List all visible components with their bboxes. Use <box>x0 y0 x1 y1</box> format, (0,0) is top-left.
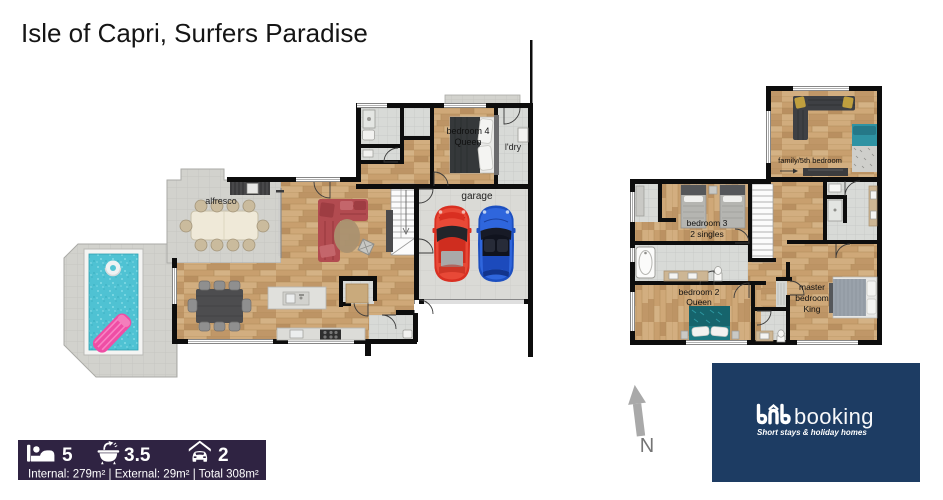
svg-text:2 singles: 2 singles <box>690 229 724 239</box>
svg-text:2: 2 <box>218 445 229 466</box>
svg-text:Isle of Capri, Surfers Paradis: Isle of Capri, Surfers Paradise <box>21 18 368 48</box>
svg-text:l'dry: l'dry <box>505 142 522 152</box>
svg-text:bedroom 2: bedroom 2 <box>679 287 720 297</box>
svg-text:5: 5 <box>62 445 73 466</box>
svg-text:master: master <box>799 282 825 292</box>
svg-text:Queen: Queen <box>454 137 481 147</box>
svg-text:Queen: Queen <box>686 297 712 307</box>
svg-text:N: N <box>640 435 654 457</box>
svg-text:bedroom 3: bedroom 3 <box>687 218 728 228</box>
svg-text:family/5th bedroom: family/5th bedroom <box>778 156 842 165</box>
svg-text:Internal: 279m² | External: 29: Internal: 279m² | External: 29m² | Total… <box>28 469 259 481</box>
svg-text:bedroom 4: bedroom 4 <box>446 126 489 136</box>
svg-text:alfresco: alfresco <box>205 196 237 206</box>
svg-text:bedroom: bedroom <box>795 293 829 303</box>
svg-text:Short stays & holiday homes: Short stays & holiday homes <box>757 428 867 437</box>
svg-text:booking: booking <box>794 404 874 429</box>
svg-text:garage: garage <box>461 191 493 202</box>
svg-text:3.5: 3.5 <box>124 445 151 466</box>
svg-text:King: King <box>803 304 820 314</box>
